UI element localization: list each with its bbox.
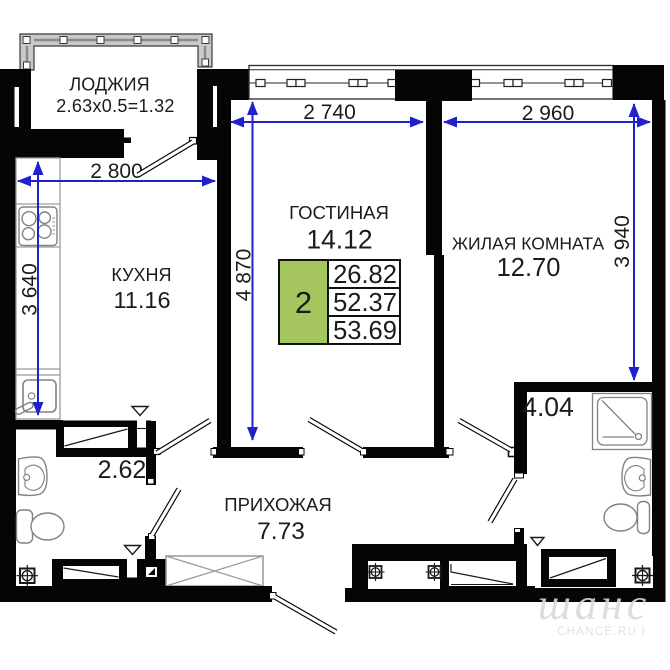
svg-text:ГОСТИНАЯ: ГОСТИНАЯ xyxy=(289,202,389,223)
svg-text:3 640: 3 640 xyxy=(19,263,42,316)
svg-text:ЛОДЖИЯ: ЛОДЖИЯ xyxy=(69,75,149,95)
svg-text:52.37: 52.37 xyxy=(333,289,397,317)
svg-text:2.63х0.5=1.32: 2.63х0.5=1.32 xyxy=(56,96,175,116)
svg-text:ПРИХОЖАЯ: ПРИХОЖАЯ xyxy=(224,494,331,515)
svg-text:ЖИЛАЯ КОМНАТА: ЖИЛАЯ КОМНАТА xyxy=(452,234,605,254)
svg-text:КУХНЯ: КУХНЯ xyxy=(111,265,171,285)
svg-text:4 870: 4 870 xyxy=(233,249,256,302)
svg-text:2 740: 2 740 xyxy=(303,101,356,124)
svg-text:2 960: 2 960 xyxy=(522,102,575,125)
svg-text:14.12: 14.12 xyxy=(306,225,372,255)
svg-text:CHANCE.RU |: CHANCE.RU | xyxy=(557,626,646,638)
svg-text:шанс: шанс xyxy=(538,580,651,629)
svg-text:2.62: 2.62 xyxy=(98,456,147,484)
svg-text:11.16: 11.16 xyxy=(113,287,170,313)
svg-text:4.04: 4.04 xyxy=(522,392,574,422)
svg-text:12.70: 12.70 xyxy=(497,254,561,282)
svg-text:53.69: 53.69 xyxy=(333,317,397,345)
svg-text:26.82: 26.82 xyxy=(333,261,397,289)
svg-text:7.73: 7.73 xyxy=(257,518,305,545)
svg-text:2: 2 xyxy=(295,285,312,320)
svg-text:3 940: 3 940 xyxy=(611,215,634,268)
svg-text:2 800: 2 800 xyxy=(90,160,143,183)
